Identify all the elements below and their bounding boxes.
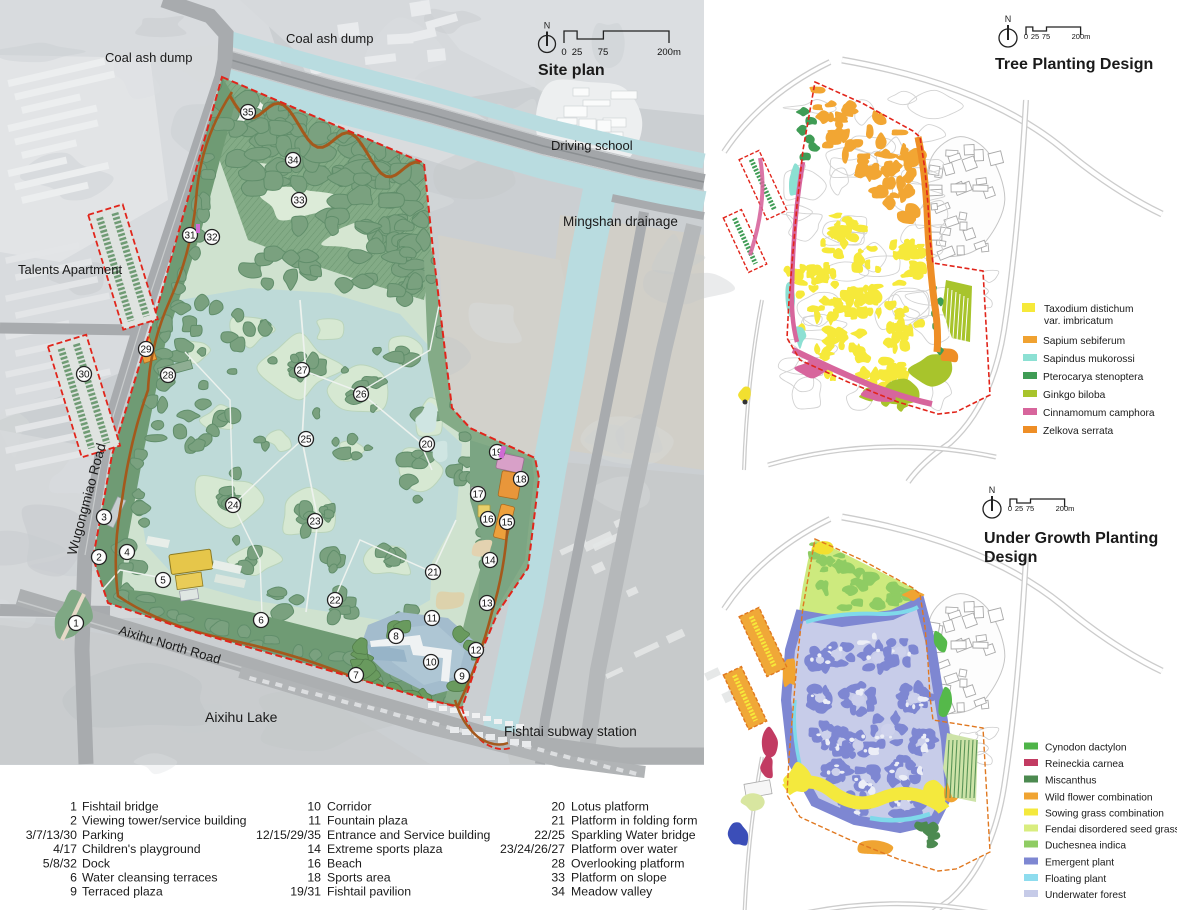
svg-text:Cinnamomum camphora: Cinnamomum camphora	[1043, 408, 1155, 419]
svg-text:12/15/29/35: 12/15/29/35	[256, 828, 321, 842]
svg-text:Meadow valley: Meadow valley	[571, 885, 653, 899]
svg-text:N: N	[544, 21, 551, 31]
svg-text:31: 31	[184, 230, 196, 241]
svg-text:Fishtail bridge: Fishtail bridge	[82, 800, 159, 814]
svg-text:9: 9	[459, 671, 465, 682]
svg-text:30: 30	[78, 369, 90, 380]
svg-text:0: 0	[561, 47, 566, 58]
svg-text:20: 20	[551, 800, 565, 814]
svg-text:21: 21	[427, 567, 439, 578]
svg-text:Parking: Parking	[82, 828, 124, 842]
svg-text:Lotus platform: Lotus platform	[571, 800, 649, 814]
svg-text:17: 17	[472, 489, 484, 500]
svg-text:6: 6	[70, 871, 77, 885]
svg-text:Sports area: Sports area	[327, 871, 391, 885]
svg-text:200m: 200m	[1072, 32, 1091, 41]
svg-text:1: 1	[70, 800, 77, 814]
svg-text:Zelkova serrata: Zelkova serrata	[1043, 426, 1114, 437]
svg-text:Sparkling Water bridge: Sparkling Water bridge	[571, 828, 696, 842]
svg-text:Site plan: Site plan	[538, 62, 605, 79]
svg-text:Corridor: Corridor	[327, 800, 371, 814]
svg-text:Children's playground: Children's playground	[82, 842, 201, 856]
svg-text:18: 18	[515, 474, 527, 485]
svg-text:200m: 200m	[1056, 504, 1075, 513]
svg-text:Sapium sebiferum: Sapium sebiferum	[1043, 336, 1125, 347]
svg-text:Miscanthus: Miscanthus	[1045, 776, 1097, 787]
svg-text:Fountain plaza: Fountain plaza	[327, 814, 408, 828]
svg-text:Dock: Dock	[82, 856, 111, 870]
svg-text:Wild flower combination: Wild flower combination	[1045, 793, 1153, 804]
svg-text:0: 0	[1024, 32, 1028, 41]
svg-text:75: 75	[1026, 504, 1034, 513]
svg-text:27: 27	[296, 365, 308, 376]
svg-text:29: 29	[140, 344, 152, 355]
svg-text:Driving school: Driving school	[551, 138, 633, 153]
svg-text:7: 7	[353, 670, 359, 681]
svg-text:11: 11	[308, 814, 321, 828]
svg-text:23: 23	[309, 516, 321, 527]
svg-text:9: 9	[70, 885, 77, 899]
svg-text:75: 75	[1042, 32, 1050, 41]
svg-text:16: 16	[307, 856, 321, 870]
svg-text:Aixihu Lake: Aixihu Lake	[205, 709, 278, 725]
svg-text:Floating plant: Floating plant	[1045, 874, 1106, 885]
svg-text:Talents Apartment: Talents Apartment	[18, 262, 122, 277]
svg-text:Sapindus mukorossi: Sapindus mukorossi	[1043, 354, 1135, 365]
svg-text:Entrance and Service building: Entrance and Service building	[327, 828, 491, 842]
svg-text:Underwater forest: Underwater forest	[1045, 890, 1126, 901]
svg-text:22/25: 22/25	[534, 828, 565, 842]
svg-text:8: 8	[393, 631, 399, 642]
svg-text:25: 25	[572, 47, 583, 58]
svg-text:32: 32	[206, 232, 218, 243]
svg-text:Extreme sports plaza: Extreme sports plaza	[327, 842, 443, 856]
svg-text:33: 33	[293, 195, 305, 206]
svg-text:24: 24	[227, 500, 239, 511]
svg-text:34: 34	[287, 155, 299, 166]
svg-text:Duchesnea indica: Duchesnea indica	[1045, 841, 1126, 852]
svg-text:5/8/32: 5/8/32	[43, 856, 77, 870]
svg-text:Emergent plant: Emergent plant	[1045, 858, 1114, 869]
svg-text:25: 25	[300, 434, 312, 445]
svg-text:Pterocarya stenoptera: Pterocarya stenoptera	[1043, 372, 1144, 383]
svg-text:75: 75	[598, 47, 609, 58]
svg-text:20: 20	[421, 439, 433, 450]
svg-text:Platform over water: Platform over water	[571, 842, 678, 856]
svg-text:Taxodium distichum: Taxodium distichum	[1044, 304, 1133, 315]
svg-text:Overlooking platform: Overlooking platform	[571, 856, 684, 870]
svg-text:Fishtai subway station: Fishtai subway station	[504, 724, 637, 739]
svg-text:Reineckia carnea: Reineckia carnea	[1045, 759, 1124, 770]
svg-text:34: 34	[551, 885, 565, 899]
svg-text:N: N	[989, 485, 996, 495]
svg-text:6: 6	[258, 615, 264, 626]
svg-text:25: 25	[1015, 504, 1023, 513]
svg-text:13: 13	[481, 598, 493, 609]
svg-text:25: 25	[1031, 32, 1039, 41]
svg-text:18: 18	[307, 871, 321, 885]
svg-text:28: 28	[162, 370, 174, 381]
svg-text:4: 4	[124, 547, 130, 558]
svg-text:Under Growth Planting: Under Growth Planting	[984, 530, 1158, 547]
svg-text:Water cleansing terraces: Water cleansing terraces	[82, 871, 218, 885]
svg-text:Ginkgo biloba: Ginkgo biloba	[1043, 390, 1106, 401]
svg-text:21: 21	[551, 814, 565, 828]
svg-text:19/31: 19/31	[290, 885, 321, 899]
svg-text:var. imbricatum: var. imbricatum	[1044, 316, 1113, 327]
svg-text:4/17: 4/17	[53, 842, 77, 856]
svg-text:14: 14	[484, 555, 496, 566]
svg-text:Fishtail pavilion: Fishtail pavilion	[327, 885, 411, 899]
svg-text:10: 10	[307, 800, 321, 814]
svg-text:0: 0	[1008, 504, 1012, 513]
svg-text:Design: Design	[984, 549, 1037, 566]
svg-text:16: 16	[482, 514, 494, 525]
svg-text:33: 33	[551, 871, 565, 885]
svg-text:Cynodon dactylon: Cynodon dactylon	[1045, 743, 1127, 754]
svg-text:35: 35	[242, 107, 254, 118]
svg-text:Sowing grass combination: Sowing grass combination	[1045, 809, 1164, 820]
svg-text:22: 22	[329, 595, 341, 606]
svg-text:Platform on slope: Platform on slope	[571, 871, 667, 885]
svg-text:11: 11	[427, 613, 438, 624]
svg-text:Viewing tower/service building: Viewing tower/service building	[82, 814, 247, 828]
svg-text:10: 10	[425, 657, 437, 668]
svg-text:Fendai disordered seed grass: Fendai disordered seed grass	[1045, 825, 1177, 836]
svg-text:28: 28	[551, 856, 565, 870]
svg-text:Terraced plaza: Terraced plaza	[82, 885, 163, 899]
svg-text:5: 5	[160, 575, 166, 586]
svg-text:23/24/26/27: 23/24/26/27	[500, 842, 565, 856]
svg-text:N: N	[1005, 14, 1012, 24]
svg-text:Tree Planting Design: Tree Planting Design	[995, 56, 1153, 73]
svg-text:14: 14	[307, 842, 321, 856]
svg-text:Mingshan drainage: Mingshan drainage	[563, 214, 678, 229]
svg-text:Coal ash dump: Coal ash dump	[105, 50, 192, 65]
svg-text:2: 2	[70, 814, 77, 828]
svg-text:1: 1	[73, 618, 79, 629]
svg-text:12: 12	[470, 645, 482, 656]
svg-text:15: 15	[501, 517, 513, 528]
svg-text:Platform in folding form: Platform in folding form	[571, 814, 697, 828]
svg-text:26: 26	[355, 389, 367, 400]
svg-text:3: 3	[101, 512, 107, 523]
svg-text:Beach: Beach	[327, 856, 362, 870]
svg-text:Coal ash dump: Coal ash dump	[286, 31, 373, 46]
svg-text:3/7/13/30: 3/7/13/30	[26, 828, 77, 842]
svg-text:200m: 200m	[657, 47, 681, 58]
svg-text:2: 2	[96, 552, 102, 563]
